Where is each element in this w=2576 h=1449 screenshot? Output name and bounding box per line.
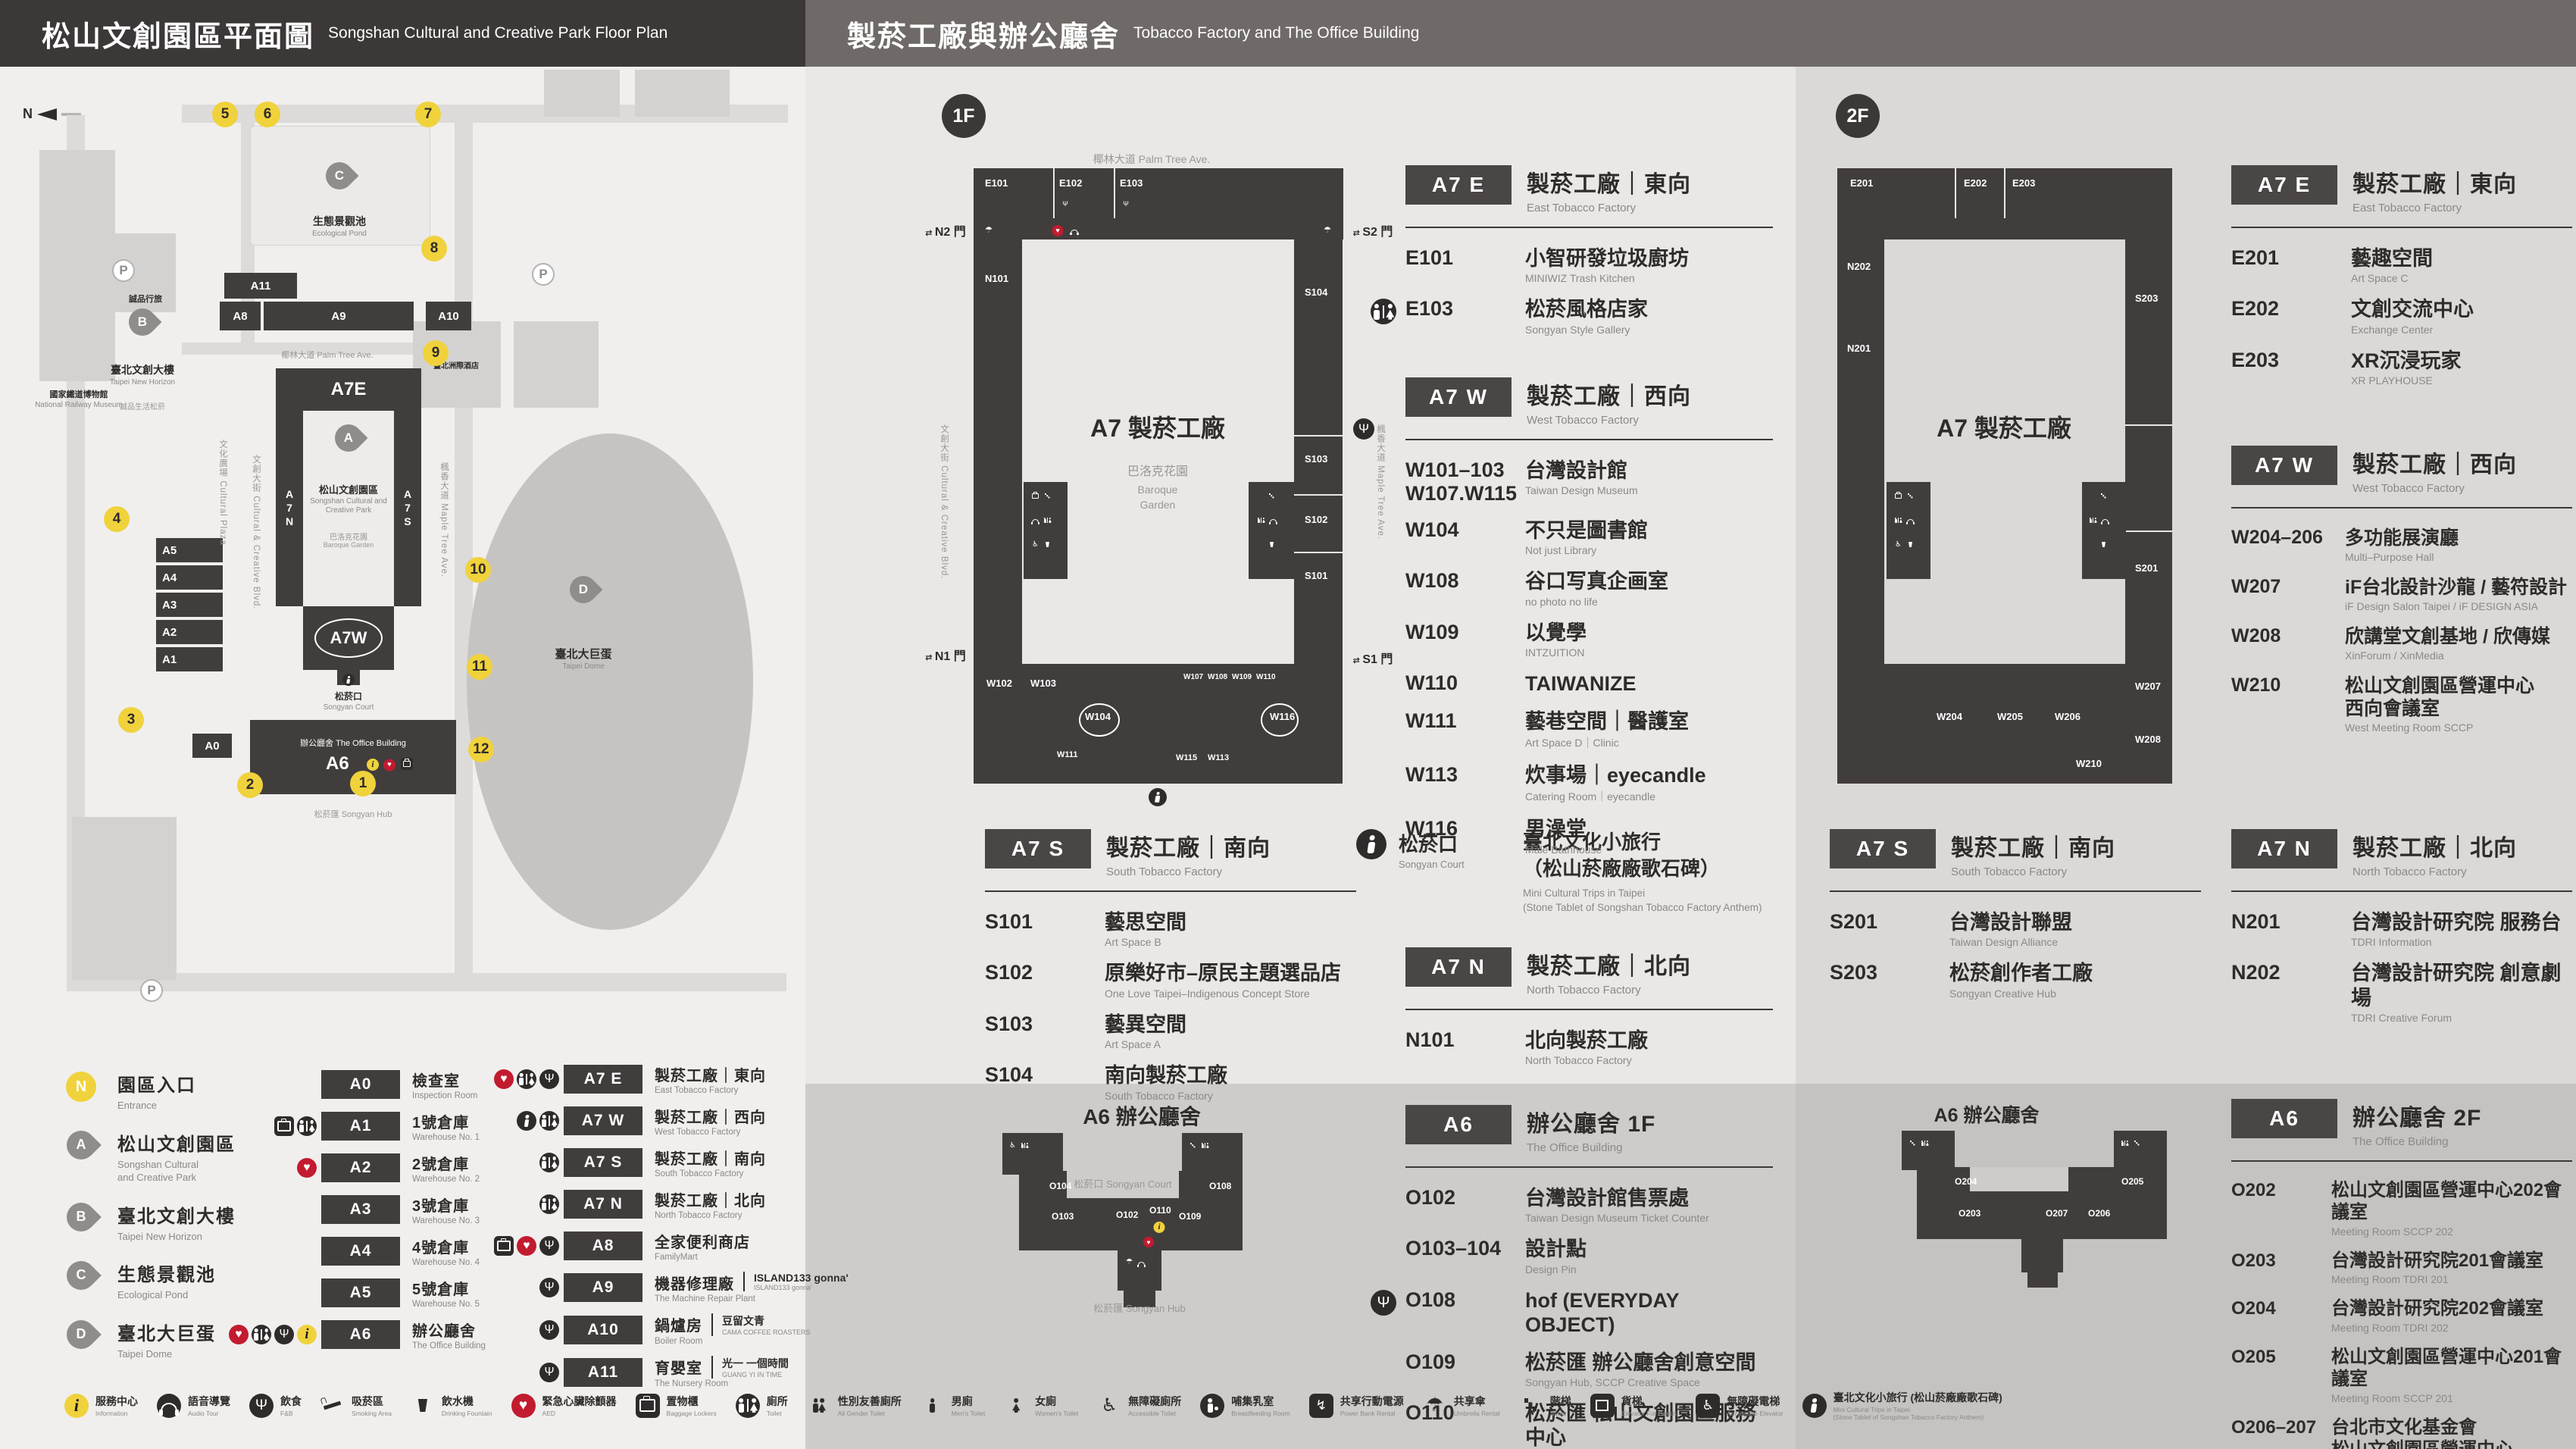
room-code: W109 [1405, 621, 1525, 644]
facility-en: Audio Tour [188, 1410, 230, 1417]
facility-legend-goods_elev: 貨梯Elevator For Goods [1590, 1394, 1677, 1418]
floor-plan-poster: 松山文創園區平面圖 Songshan Cultural and Creative… [0, 0, 2576, 1449]
room-label-w115: W115 [1176, 753, 1197, 762]
map-gray-label: 椰林大道 Palm Tree Ave. [1093, 152, 1211, 167]
entrance-marker-7: 7 [415, 102, 441, 127]
plan-service-icons: ♿ [1008, 1141, 1030, 1150]
building-label: A10 [438, 310, 459, 323]
facility-legend-strip: i服務中心Information語音導覽Audio TourΨ飲食F&B吸菸區S… [64, 1390, 2002, 1421]
building-block-a1: A1 [156, 647, 223, 671]
facility-legend-fnb: Ψ飲食F&B [249, 1394, 302, 1418]
room-name: 台灣設計研究院201會議室Meeting Room TDRI 201 [2331, 1250, 2543, 1286]
room-code: E202 [2231, 297, 2351, 321]
room-name-en: TDRI Information [2351, 936, 2562, 948]
building-name-en: South Tobacco Factory [655, 1169, 766, 1178]
audio-icon [2100, 515, 2110, 525]
facility-zh: 共享傘 [1454, 1394, 1500, 1409]
building-block [2027, 1271, 2058, 1288]
building-block [2114, 1131, 2167, 1170]
section-divider [2231, 507, 2572, 509]
room-label-o205: O205 [2121, 1176, 2143, 1187]
building-legend-row-a7e: ♥ΨA7 E製菸工廠｜東向East Tobacco Factory [447, 1063, 849, 1095]
room-name: 藝異空間Art Space A [1105, 1012, 1186, 1050]
map-pin-a: A [335, 424, 362, 452]
facility-zh: 無障礙電梯 [1727, 1394, 1783, 1409]
room-name-zh: iF台北設計沙龍 / 藝符設計 [2345, 576, 2567, 599]
building-legend-icons [447, 1153, 559, 1172]
facility-texts: 服務中心Information [95, 1394, 138, 1417]
building-legend-icons: ♥Ψ [447, 1069, 559, 1089]
facility-legend-aed: ♥緊急心臟除顫器AED [511, 1394, 617, 1418]
map-building [635, 70, 730, 117]
facility-texts: 臺北文化小旅行 (松山菸廠廠歌石碑)Mini Cultural Trips in… [1834, 1390, 2002, 1421]
room-divider [2125, 424, 2172, 426]
building-legend-texts: 機器修理廠ISLAND133 gonna'ISLAND133 gonna'The… [655, 1272, 849, 1303]
facility-zh: 女廁 [1035, 1394, 1078, 1409]
aed-icon: ♥ [494, 1069, 514, 1089]
building-block-a4: A4 [156, 565, 223, 590]
facility-en: Men's Toilet [952, 1410, 985, 1417]
fnb-icon: Ψ [1060, 199, 1071, 210]
map-label: 臺北大巨蛋Taipei Dome [555, 646, 611, 671]
map-label: 國家鐵道博物館National Railway Museum [35, 388, 123, 409]
taipei-dome-shape [467, 433, 753, 930]
room-row-w207: W207iF台北設計沙龍 / 藝符設計iF Design Salon Taipe… [2231, 576, 2572, 612]
room-code: O102 [1405, 1186, 1525, 1210]
facility-en: Toilet [767, 1410, 788, 1417]
map-gray-label: 巴洛克花園 [1127, 461, 1188, 479]
building-name-en: North Tobacco Factory [655, 1211, 766, 1220]
room-row-s103: S103藝異空間Art Space A [985, 1012, 1356, 1050]
section-chip: A7 W [2231, 446, 2337, 485]
room-name: 原樂好市–原民主題選品店One Love Taipei–Indigenous C… [1105, 961, 1341, 999]
room-code: E201 [2231, 246, 2351, 270]
building-block [974, 239, 1022, 664]
room-label-w109: W109 [1232, 673, 1252, 681]
icon-holder: ☂ [1322, 223, 1333, 236]
facility-texts: 女廁Women's Toilet [1035, 1394, 1078, 1417]
plan-service-icons [1908, 1138, 1930, 1148]
room-name: 台灣設計研究院 創意劇場TDRI Creative Forum [2351, 961, 2572, 1024]
room-name-zh: 男澡堂 [1525, 817, 1602, 841]
building-legend-row-a2: ♥A22號倉庫Warehouse No. 2 [205, 1152, 486, 1184]
facility-legend-powerbank: ↯共享行動電源Power Bank Rental [1309, 1394, 1404, 1418]
plan-service-icons: ☂ [1124, 1258, 1146, 1268]
building-legend-texts: 製菸工廠｜南向South Tobacco Factory [655, 1147, 766, 1178]
section-chip: A6 [2231, 1099, 2337, 1138]
facility-texts: 無障礙電梯Accessible Elevator [1727, 1394, 1783, 1417]
brand-en: ISLAND133 gonna' [754, 1284, 849, 1291]
wheelchair-icon: ♿ [1008, 1141, 1018, 1150]
wheelchair-icon: ♿ [1893, 540, 1903, 549]
umbrella-icon: ☂ [983, 226, 994, 236]
toilet-icon [252, 1325, 271, 1344]
room-label-w113: W113 [1208, 753, 1229, 762]
place-texts: 園區入口Entrance [117, 1070, 196, 1113]
section-chip: A7 S [985, 829, 1091, 868]
room-name-en: Taiwan Design Museum [1525, 484, 1638, 496]
wheelchair-icon: ♿ [1030, 540, 1040, 549]
room-row-o108: ΨO108hof (EVERYDAY OBJECT) [1405, 1288, 1773, 1338]
facility-en: Elevator For Goods [1621, 1410, 1677, 1417]
facility-texts: 性別友善廁所All Gender Toilet [838, 1394, 902, 1417]
room-name: TAIWANIZE [1525, 671, 1636, 696]
room-label-o102: O102 [1116, 1210, 1138, 1220]
room-name-en: no photo no life [1525, 596, 1668, 608]
section-header: A7 W製菸工廠｜西向West Tobacco Factory [1405, 377, 1773, 427]
section-divider [1405, 1009, 1773, 1010]
room-label-e102: E102 [1059, 177, 1082, 189]
building-legend-row-a7s: A7 S製菸工廠｜南向South Tobacco Factory [447, 1147, 849, 1178]
plan-service-icons [2099, 491, 2109, 501]
toilet-icon [1020, 1141, 1030, 1150]
room-name-zh: 台灣設計研究院 創意劇場 [2351, 961, 2572, 1010]
section-chip: A7 N [1405, 947, 1512, 987]
facility-legend-women: 女廁Women's Toilet [1004, 1394, 1078, 1418]
room-label-o204: O204 [1955, 1176, 1977, 1187]
left-header: 松山文創園區平面圖 Songshan Cultural and Creative… [0, 0, 805, 67]
street-label: 楓香大道 Maple Tree Ave. [438, 462, 450, 577]
facility-texts: 置物櫃Baggage Lockers [667, 1394, 717, 1417]
room-row-o205: O205松山文創園區營運中心201會議室Meeting Room SCCP 20… [2231, 1347, 2572, 1404]
toilet-icon [297, 1116, 317, 1136]
toilet-icon [2120, 1138, 2130, 1148]
room-row-o109: O109松菸匯 辦公廳舍創意空間Songyan Hub, SCCP Creati… [1405, 1350, 1773, 1388]
pin-letter: B [138, 315, 147, 330]
section-chip: A7 W [1405, 377, 1512, 417]
locker-icon [1893, 491, 1903, 501]
facility-en: All Gender Toilet [838, 1410, 902, 1417]
room-label-e103: E103 [1120, 177, 1143, 189]
room-divider [1294, 494, 1343, 496]
building-legend-chip: A7 S [564, 1148, 642, 1177]
goods_elev-icon [1590, 1394, 1615, 1418]
room-name: 台灣設計館售票處Taiwan Design Museum Ticket Coun… [1525, 1186, 1709, 1224]
parking-icon: P [112, 259, 135, 282]
map-label-en: Taipei Dome [555, 662, 611, 671]
map-road [455, 123, 473, 991]
room-row-e203: E203XR沉浸玩家XR PLAYHOUSE [2231, 349, 2572, 387]
room-name-zh: 松菸匯 辦公廳舍創意空間 [1525, 1350, 1756, 1375]
section-divider [2231, 227, 2572, 228]
room-code: O109 [1405, 1350, 1525, 1374]
section-header: A7 W製菸工廠｜西向West Tobacco Factory [2231, 446, 2572, 495]
room-name-zh: 台灣設計館 [1525, 458, 1638, 483]
room-row-e202: E202文創交流中心Exchange Center [2231, 297, 2572, 335]
locker-icon [494, 1236, 514, 1256]
room-code: E203 [2231, 349, 2351, 372]
map-gray-label: Baroque [1138, 484, 1178, 496]
facility-texts: 吸菸區Smoking Area [352, 1394, 392, 1417]
room-label-w110: W110 [1256, 673, 1276, 681]
section-header: A7 N製菸工廠｜北向North Tobacco Factory [2231, 829, 2572, 878]
room-facility-icon [1371, 299, 1396, 324]
factory-title-en: Tobacco Factory and The Office Building [1133, 24, 1419, 42]
pin-icon: B [61, 1197, 102, 1238]
room-code: S104 [985, 1063, 1105, 1087]
room-name: 藝趣空間Art Space C [2351, 246, 2433, 284]
room-label-s104: S104 [1305, 286, 1327, 298]
place-name-zh: 園區入口 [117, 1070, 196, 1097]
plan-service-icons [2088, 515, 2110, 525]
entrance-marker-11: 11 [467, 654, 492, 680]
room-name: 谷口写真企画室no photo no life [1525, 569, 1668, 607]
plan-service-icons [1893, 491, 1915, 501]
gate-label: ⇄ N2 門 [925, 221, 966, 239]
parking-icon: P [532, 263, 555, 286]
facility-texts: 階梯Stairs [1550, 1394, 1571, 1417]
room-name-zh: XR沉浸玩家 [2351, 349, 2462, 373]
facility-zh: 哺集乳室 [1231, 1394, 1290, 1409]
section-a7n: A7 N製菸工廠｜北向North Tobacco FactoryN201台灣設計… [2231, 829, 2572, 1037]
map-small-label: 誠品行旅 [129, 293, 162, 305]
room-name-zh: 谷口写真企画室 [1525, 569, 1668, 593]
section-a7w: A7 W製菸工廠｜西向West Tobacco FactoryW204–206多… [2231, 446, 2572, 746]
section-titles: 製菸工廠｜北向North Tobacco Factory [2352, 829, 2517, 878]
room-label-s201: S201 [2135, 562, 2158, 574]
section-titles: 製菸工廠｜東向East Tobacco Factory [1527, 165, 1691, 214]
plan-title: A6 辦公廳舍 [1934, 1100, 2040, 1128]
pin-letter: B [77, 1209, 86, 1225]
facility-legend-wheelchair: ♿無障礙廁所Accessible Toilet [1097, 1394, 1181, 1418]
room-row-w109: W109以覺學INTZUITION [1405, 621, 1773, 659]
room-name-en: Taiwan Design Museum Ticket Counter [1525, 1212, 1709, 1224]
building-legend-icons: Ψ [447, 1320, 559, 1340]
room-name-zh: 炊事場｜eyecandle [1525, 763, 1706, 787]
aed-icon: ♥ [229, 1325, 249, 1344]
place-name-en: Ecological Pond [117, 1288, 216, 1302]
room-name: 松山文創園區營運中心201會議室Meeting Room SCCP 201 [2331, 1347, 2572, 1404]
room-code: W110 [1405, 671, 1525, 695]
building-legend-texts: 鍋爐房豆留文青CAMA COFFEE ROASTERSBoiler Room [655, 1313, 811, 1346]
room-code: W108 [1405, 569, 1525, 593]
building-legend-texts: 製菸工廠｜北向North Tobacco Factory [655, 1188, 766, 1220]
section-title-zh: 製菸工廠｜東向 [1527, 165, 1691, 199]
building-legend-row-a9: ΨA9機器修理廠ISLAND133 gonna'ISLAND133 gonna'… [447, 1272, 849, 1303]
pin-shape: A [330, 419, 368, 458]
section-title-en: West Tobacco Factory [1527, 414, 1691, 427]
room-name-en: TDRI Creative Forum [2351, 1012, 2572, 1024]
room-name-zh: 松山文創園區營運中心201會議室 [2331, 1347, 2572, 1391]
facility-legend-acc_elev: ♿無障礙電梯Accessible Elevator [1696, 1394, 1783, 1418]
room-name: 多功能展演廳Multi–Purpose Hall [2345, 527, 2459, 563]
building-name-zh: 製菸工廠｜東向 [655, 1068, 766, 1084]
allgender-icon [807, 1394, 831, 1418]
room-name-zh: 文創交流中心 [2351, 297, 2474, 321]
room-name: 欣講堂文創基地 / 欣傳媒XinForum / XinMedia [2345, 625, 2550, 662]
facility-legend-trip: 臺北文化小旅行 (松山菸廠廠歌石碑)Mini Cultural Trips in… [1802, 1390, 2002, 1421]
fnb-icon: Ψ [1353, 418, 1374, 440]
room-label-w210: W210 [2076, 758, 2102, 769]
facility-zh: 男廁 [952, 1394, 985, 1409]
section-title-en: The Office Building [2352, 1135, 2481, 1148]
section-title-zh: 製菸工廠｜西向 [1527, 377, 1691, 411]
room-divider [1294, 552, 1343, 553]
room-code: O103–104 [1405, 1237, 1525, 1260]
building-label: A5 [162, 544, 177, 557]
building-label: A11 [251, 280, 271, 293]
oval-hall-outline [1079, 703, 1120, 737]
building-block [1902, 1131, 1955, 1170]
room-code: E101 [1405, 246, 1525, 270]
icon-holder: ☂ [983, 223, 994, 236]
room-row-w104: W104不只是圖書館Not just Library [1405, 518, 1773, 556]
room-name-en: Art Space C [2351, 272, 2433, 284]
room-row-w110: W110TAIWANIZE [1405, 671, 1773, 696]
trip-icon [1356, 829, 1386, 859]
map-label-en: Songyan Court [324, 703, 374, 712]
facility-zh: 貨梯 [1621, 1394, 1677, 1409]
map-label-zh: 松山文創園區 [310, 482, 387, 496]
building-label: A2 [162, 626, 177, 639]
room-row-s102: S102原樂好市–原民主題選品店One Love Taipei–Indigeno… [985, 961, 1356, 999]
aed-icon: ♥ [517, 1236, 536, 1256]
room-label-n201: N201 [1847, 343, 1871, 354]
place-name-zh: 臺北大巨蛋 [117, 1319, 216, 1345]
trip-icon [1149, 788, 1167, 806]
facility-en: Power Bank Rental [1340, 1410, 1404, 1417]
locker-icon [274, 1116, 294, 1136]
room-label-e201: E201 [1850, 177, 1873, 189]
map-label-zh: 臺北文創大樓 [110, 362, 175, 377]
place-marker: N [64, 1070, 98, 1102]
facility-zh: 緊急心臟除顫器 [542, 1394, 617, 1409]
map-gray-label: 誠品生活松菸 [120, 400, 165, 412]
map-building [72, 817, 177, 980]
fountain-icon [411, 1394, 435, 1418]
map-building [514, 321, 599, 408]
room-code: O202 [2231, 1180, 2331, 1201]
map-label-zh: 松菸口 [324, 690, 374, 703]
stairs-icon [1905, 491, 1915, 501]
room-row-e103: E103松菸風格店家Songyan Style Gallery [1405, 297, 1773, 335]
room-name-en: Design Pin [1525, 1263, 1587, 1275]
room-code: W101–103W107.W115 [1405, 458, 1525, 505]
building-legend-chip: A2 [321, 1153, 400, 1182]
map-building [544, 70, 620, 117]
trip-icon [517, 1111, 536, 1131]
room-label-n202: N202 [1847, 261, 1871, 272]
section-a6: A6辦公廳舍 2FThe Office BuildingO202松山文創園區營運… [2231, 1099, 2572, 1449]
room-facility-icon: Ψ [1371, 1290, 1396, 1316]
section-divider [1405, 1166, 1773, 1168]
acc_elev-icon: ♿ [1696, 1394, 1720, 1418]
room-name: 松菸匯 辦公廳舍創意空間Songyan Hub, SCCP Creative S… [1525, 1350, 1756, 1388]
room-name: iF台北設計沙龍 / 藝符設計iF Design Salon Taipei / … [2345, 576, 2567, 612]
room-name-zh: 小智研發垃圾廚坊 [1525, 246, 1689, 271]
section-title-en: South Tobacco Factory [1106, 865, 1271, 878]
room-name-en: West Meeting Room SCCP [2345, 721, 2534, 734]
building-label: A8 [233, 310, 247, 323]
room-row-n101: N101北向製菸工廠North Tobacco Factory [1405, 1028, 1773, 1066]
icon-holder [1149, 788, 1167, 806]
room-label-w102: W102 [986, 678, 1012, 689]
facility-texts: 語音導覽Audio Tour [188, 1394, 230, 1417]
icon-holder: Ψ [1121, 196, 1132, 210]
pin-shape: D [564, 571, 603, 609]
room-label-o109: O109 [1179, 1211, 1201, 1222]
powerbank-icon: ↯ [1309, 1394, 1333, 1418]
building-legend-col2: ♥ΨA7 E製菸工廠｜東向East Tobacco FactoryA7 W製菸工… [447, 1063, 849, 1398]
room-label-e202: E202 [1964, 177, 1987, 189]
place-texts: 生態景觀池Ecological Pond [117, 1260, 216, 1302]
room-name-en: Multi–Purpose Hall [2345, 551, 2459, 563]
facility-texts: 飲水機Drinking Fountain [442, 1394, 492, 1417]
building-legend-col1: A0檢查室Inspection RoomA11號倉庫Warehouse No. … [205, 1069, 486, 1360]
room-name-en: Art Space B [1105, 936, 1186, 948]
building-label: A4 [162, 571, 177, 584]
room-label-w108: W108 [1208, 673, 1227, 681]
room-name: 藝巷空間｜醫護室Art Space D｜Clinic [1525, 709, 1689, 750]
room-name-zh: 松菸創作者工廠 [1949, 961, 2093, 985]
toilet-icon [517, 1069, 536, 1089]
map-gray-label: 松菸匯 Songyan Hub [314, 808, 392, 820]
audio-icon [1268, 515, 1278, 525]
room-code: N101 [1405, 1028, 1525, 1052]
room-name-zh: 藝巷空間｜醫護室 [1525, 709, 1689, 734]
room-name: 南向製菸工廠South Tobacco Factory [1105, 1063, 1227, 1101]
facility-en: AED [542, 1410, 617, 1417]
women-icon [1004, 1394, 1028, 1418]
brand-zh: 光一 一個時間 [722, 1356, 789, 1371]
room-name: 台灣設計研究院202會議室Meeting Room TDRI 202 [2331, 1298, 2543, 1334]
room-row-e201: E201藝趣空間Art Space C [2231, 246, 2572, 284]
room-name-zh: 南向製菸工廠 [1105, 1063, 1227, 1088]
room-row-o103–104: O103–104設計點Design Pin [1405, 1237, 1773, 1275]
fnb-icon: Ψ [1371, 1290, 1396, 1316]
facility-legend-toilet: 廁所Toilet [736, 1394, 788, 1418]
room-code: W116 [1405, 817, 1525, 840]
room-name-zh: 藝思空間 [1105, 910, 1186, 934]
audio-icon [157, 1394, 181, 1418]
brand-en: CAMA COFFEE ROASTERS [722, 1329, 811, 1336]
section-header: A7 E製菸工廠｜東向East Tobacco Factory [1405, 165, 1773, 214]
info-icon: i [367, 759, 379, 771]
wheelchair-icon: ♿ [1097, 1394, 1121, 1418]
facility-en: Accessible Elevator [1727, 1410, 1783, 1417]
fnb-icon: Ψ [539, 1236, 559, 1256]
building-legend-row-a7n: A7 N製菸工廠｜北向North Tobacco Factory [447, 1188, 849, 1220]
building-block-a11: A11 [224, 273, 297, 299]
building-legend-row-a0: A0檢查室Inspection Room [205, 1069, 486, 1100]
room-row-o203: O203台灣設計研究院201會議室Meeting Room TDRI 201 [2231, 1250, 2572, 1286]
stairs-icon [2132, 1138, 2142, 1148]
pin-icon: A [61, 1125, 102, 1166]
toilet-icon [539, 1194, 559, 1214]
smoking-icon [320, 1394, 345, 1418]
toilet-icon [1893, 515, 1903, 525]
building-name-zh: 製菸工廠｜北向 [655, 1193, 766, 1210]
building-legend-chip: A0 [321, 1070, 400, 1099]
plan-service-icons [1256, 515, 1278, 525]
room-row-w208: W208欣講堂文創基地 / 欣傳媒XinForum / XinMedia [2231, 625, 2572, 662]
locker-icon [636, 1394, 660, 1418]
room-name-en: Songyan Style Gallery [1525, 324, 1648, 336]
room-name: 小智研發垃圾廚坊MINIWIZ Trash Kitchen [1525, 246, 1689, 284]
entrance-marker-10: 10 [465, 557, 491, 583]
room-name-zh: 北向製菸工廠 [1525, 1028, 1648, 1053]
room-name: 台灣設計館Taiwan Design Museum [1525, 458, 1638, 496]
brand-zh: ISLAND133 gonna' [754, 1272, 849, 1284]
map-pin-b: B [129, 308, 156, 336]
entrance-marker-12: 12 [468, 737, 494, 762]
building-legend-icons: Ψ [447, 1363, 559, 1382]
building-name-zh: 育嬰室 [655, 1360, 702, 1377]
fnb-icon: Ψ [539, 1278, 559, 1297]
room-name: 松山文創園區營運中心202會議室Meeting Room SCCP 202 [2331, 1180, 2572, 1238]
facility-en: Stairs [1550, 1410, 1571, 1417]
toilet-icon [1920, 1138, 1930, 1148]
